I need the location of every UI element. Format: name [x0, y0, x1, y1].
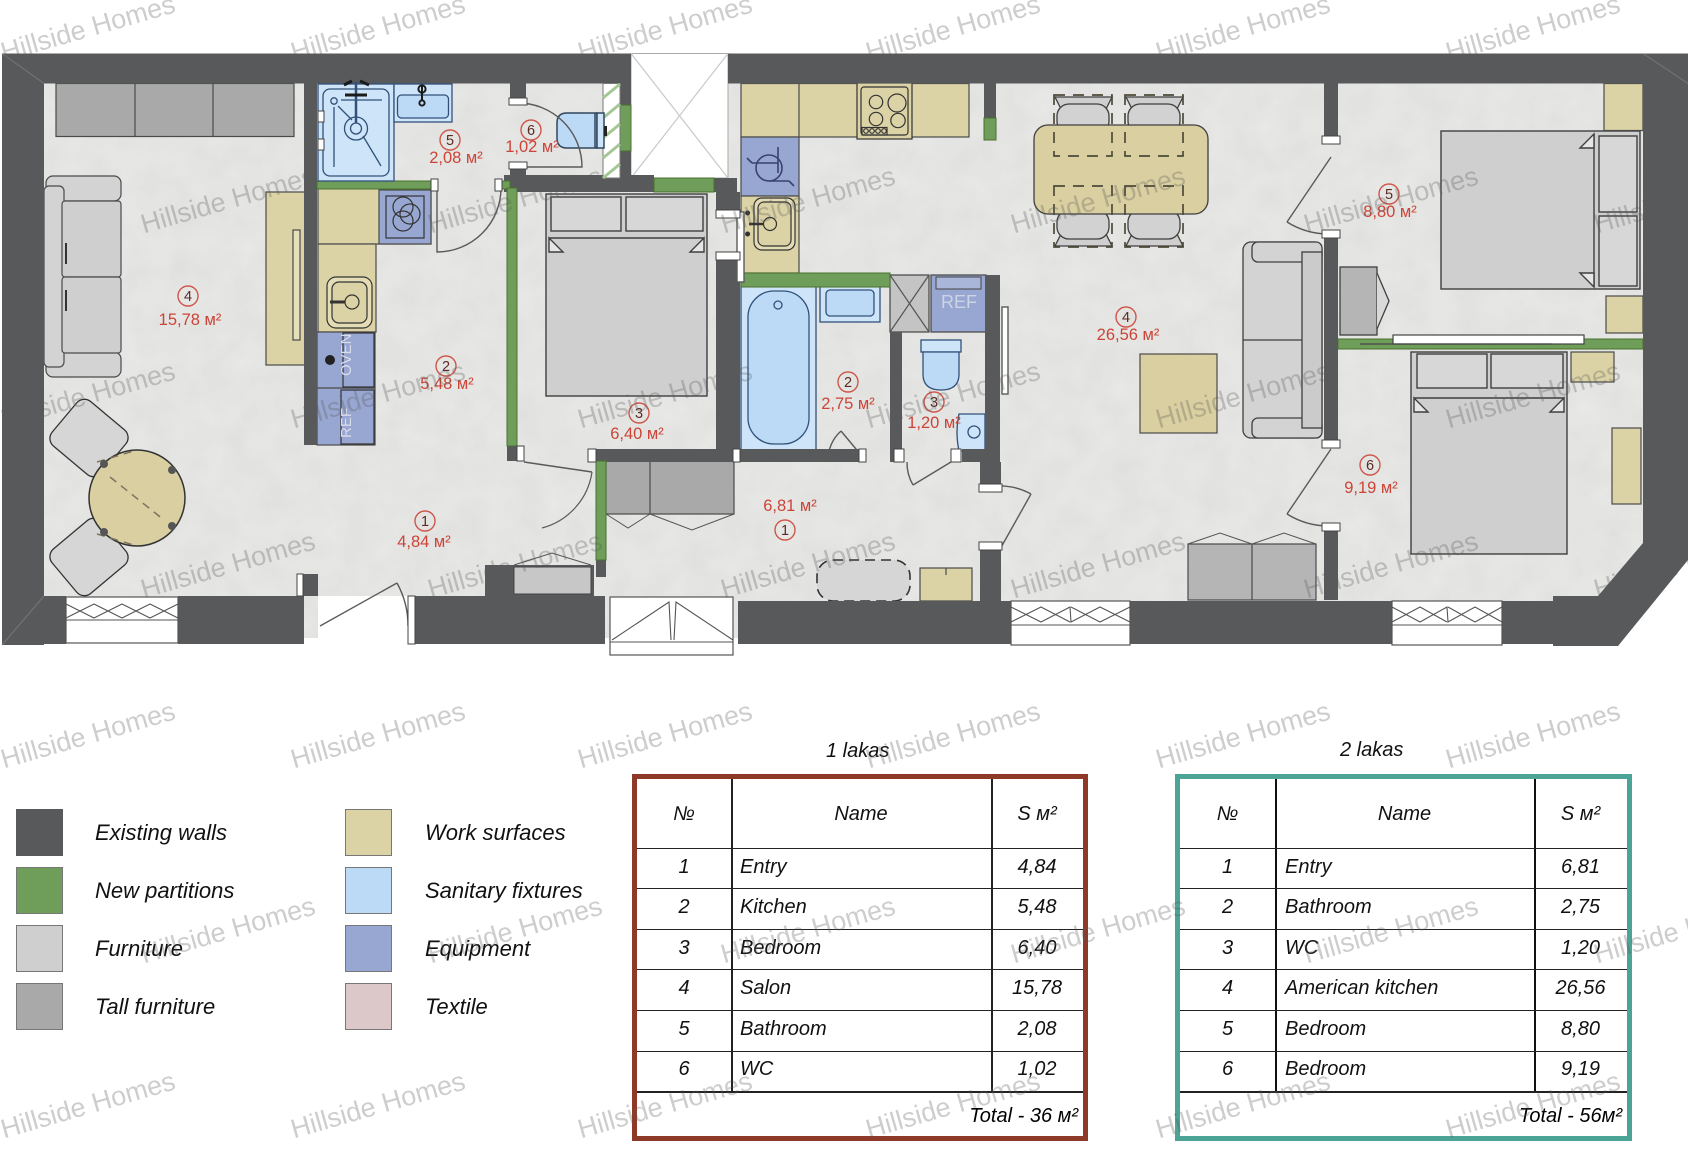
- svg-text:REF: REF: [941, 292, 977, 312]
- svg-text:REF: REF: [338, 408, 355, 438]
- svg-text:4: 4: [184, 289, 192, 305]
- svg-text:5: 5: [1385, 187, 1393, 203]
- svg-text:5,48 м²: 5,48 м²: [420, 375, 474, 393]
- svg-text:8,80 м²: 8,80 м²: [1363, 203, 1417, 221]
- svg-text:3: 3: [930, 395, 938, 411]
- svg-text:1: 1: [781, 523, 789, 539]
- svg-text:1: 1: [421, 514, 429, 530]
- svg-text:2,08 м²: 2,08 м²: [429, 149, 483, 167]
- svg-text:6,81 м²: 6,81 м²: [763, 497, 817, 515]
- svg-text:4,84 м²: 4,84 м²: [397, 533, 451, 551]
- svg-text:2: 2: [844, 375, 852, 391]
- svg-text:6: 6: [1366, 458, 1374, 474]
- svg-text:15,78 м²: 15,78 м²: [159, 311, 222, 329]
- svg-text:3: 3: [635, 406, 643, 422]
- svg-text:4: 4: [1122, 310, 1130, 326]
- svg-text:26,56 м²: 26,56 м²: [1097, 326, 1160, 344]
- svg-text:2: 2: [442, 359, 450, 375]
- svg-text:9,19 м²: 9,19 м²: [1344, 479, 1398, 497]
- svg-text:5: 5: [446, 133, 454, 149]
- svg-text:2,75 м²: 2,75 м²: [821, 395, 875, 413]
- svg-text:OVEN: OVEN: [338, 333, 355, 376]
- svg-text:1,20 м²: 1,20 м²: [907, 414, 961, 432]
- svg-text:6,40 м²: 6,40 м²: [610, 425, 664, 443]
- svg-text:6: 6: [527, 123, 535, 139]
- svg-text:1,02 м²: 1,02 м²: [505, 138, 559, 156]
